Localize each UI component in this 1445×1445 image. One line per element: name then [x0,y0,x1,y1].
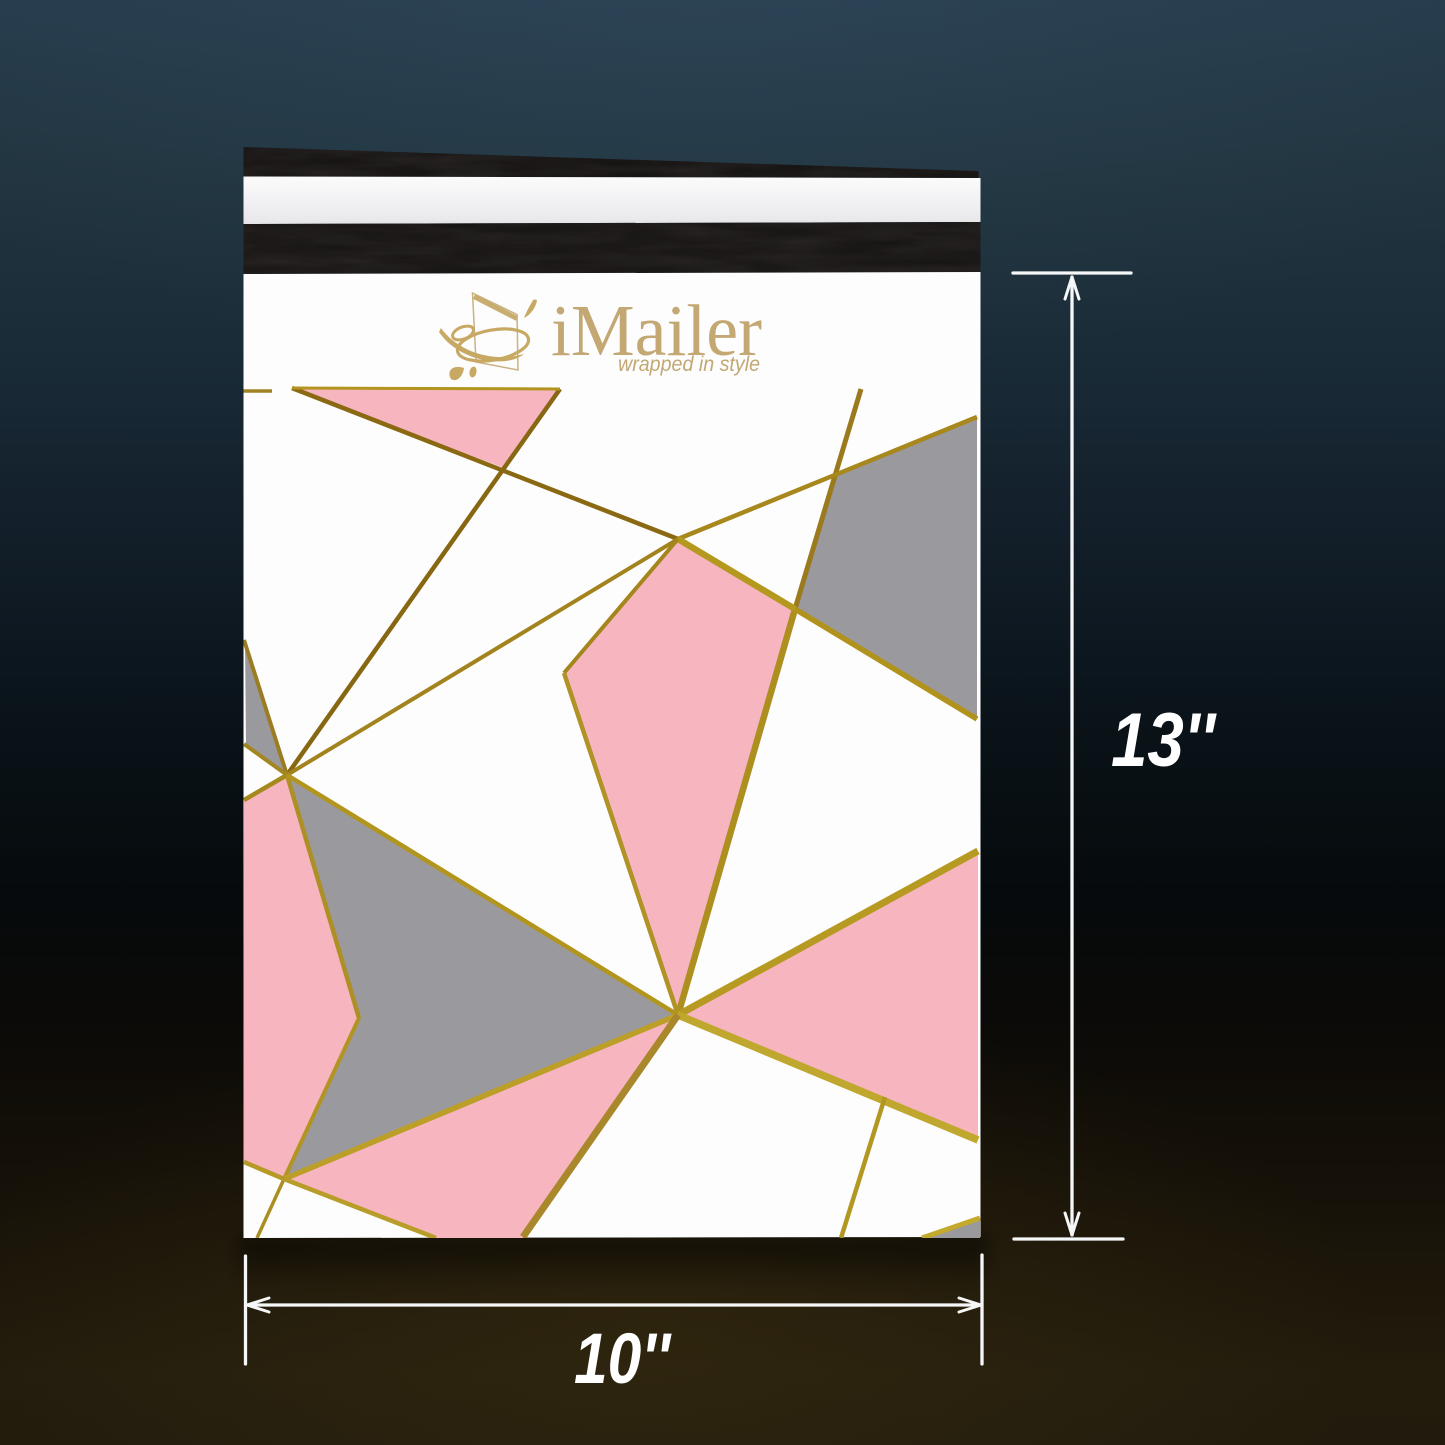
svg-text:wrapped in style: wrapped in style [618,353,760,376]
svg-text:13'': 13'' [1111,698,1218,783]
svg-text:10'': 10'' [574,1320,672,1399]
